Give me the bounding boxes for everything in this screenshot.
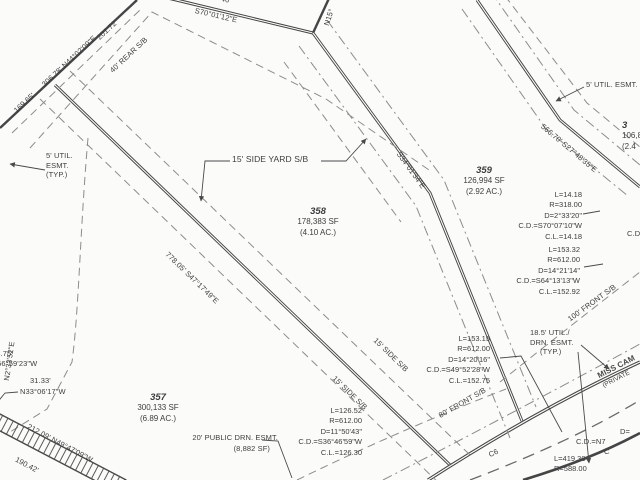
util-easement-right-label: 5' UTIL. ESMT. xyxy=(586,80,638,89)
lot-area-ac: (6.89 AC.) xyxy=(122,414,194,425)
lot-area-sf: 178,383 SF xyxy=(283,217,353,228)
lot-number: 357 xyxy=(122,392,194,403)
curve-data-c4: L=126.52 R=612.00 D=11°50'43" C.D.=S36°4… xyxy=(294,406,362,458)
curve-line: L=153.15 xyxy=(414,334,490,344)
curve-line: C.L.=14.18 xyxy=(518,232,582,242)
curve-data-c3: L=153.15 R=612.00 D=14°20'16" C.D.=S49°5… xyxy=(414,334,490,386)
lot-area-sf: 106,8 xyxy=(622,131,640,142)
west-dist2-label: 31.33' xyxy=(30,376,51,385)
util-easement-left-label: 5' UTIL. ESMT. (TYP.) xyxy=(46,151,73,180)
curve-data-cd-partial: C.D xyxy=(627,229,640,238)
curve-line: C.D.=S64°13'13"W xyxy=(514,276,580,286)
curve-line: C.L.=152.75 xyxy=(414,376,490,386)
west-brg2-label: N33°06'17"W xyxy=(20,387,66,396)
curve-line: L=126.52 xyxy=(294,406,362,416)
public-drn-easement-area: (8,882 SF) xyxy=(160,444,270,453)
util-drn-easement-label: 18.5' UTIL./ DRN. ESMT. (TYP.) xyxy=(530,328,574,357)
lot-number: 3 xyxy=(622,120,640,131)
curve-line: R=612.00 xyxy=(294,416,362,426)
plat-survey-drawing: 169.65' 306.78' N44°02'09"E 201.72' 40' … xyxy=(0,0,640,480)
curve-data-c5: L=419.30 R=588.00 xyxy=(554,454,604,475)
curve-line: D=14°21'14" xyxy=(514,266,580,276)
curve-line: D=14°20'16" xyxy=(414,355,490,365)
lot-area-sf: 126,994 SF xyxy=(448,176,520,187)
lot-357-block: 357 300,133 SF (6.89 AC.) xyxy=(122,392,194,424)
curve-line: L=14.18 xyxy=(518,190,582,200)
public-drn-easement-label: 20' PUBLIC DRN. ESMT. xyxy=(160,433,278,442)
lot-area-ac: (2.4 xyxy=(622,142,640,153)
curve-data-c1: L=14.18 R=318.00 D=2°33'20" C.D.=S70°07'… xyxy=(518,190,582,242)
curve-line: C.D.=S70°07'10"W xyxy=(518,221,582,231)
easement-text-line: (TYP.) xyxy=(530,347,574,357)
west-dist1-label: 43.75' xyxy=(0,349,13,358)
curve-line: R=318.00 xyxy=(518,200,582,210)
lot-area-sf: 300,133 SF xyxy=(122,403,194,414)
lot-area-ac: (2.92 AC.) xyxy=(448,187,520,198)
easement-text-line: DRN. ESMT. xyxy=(530,338,574,348)
curve-data-c2: L=153.32 R=612.00 D=14°21'14" C.D.=S64°1… xyxy=(514,245,580,297)
lot-359-block: 359 126,994 SF (2.92 AC.) xyxy=(448,165,520,197)
curve-line: C.L.=126.30 xyxy=(294,448,362,458)
curve-line: R=588.00 xyxy=(554,464,604,474)
curve-line: C.D.=S49°52'28"W xyxy=(414,365,490,375)
lot-number: 359 xyxy=(448,165,520,176)
west-brg1-label: S56°59'23"W xyxy=(0,359,37,368)
easement-text-line: ESMT. xyxy=(46,161,73,171)
curve-line: D=11°50'43" xyxy=(294,427,362,437)
curve-data-c6-partial-cd: C.D.=N7 xyxy=(576,437,606,446)
easement-text-line: 18.5' UTIL./ xyxy=(530,328,574,338)
curve-line: D=2°33'20" xyxy=(518,211,582,221)
curve-line: L=153.32 xyxy=(514,245,580,255)
curve-data-c6-partial-c: C xyxy=(604,447,610,456)
curve-data-c6-partial-d: D= xyxy=(620,427,630,436)
lot-right-partial-block: 3 106,8 (2.4 xyxy=(622,120,640,152)
curve-line: R=612.00 xyxy=(514,255,580,265)
lot-358-block: 358 178,383 SF (4.10 AC.) xyxy=(283,206,353,238)
lot-area-ac: (4.10 AC.) xyxy=(283,228,353,239)
curve-line: C.D.=S36°46'59"W xyxy=(294,437,362,447)
easement-text-line: 5' UTIL. xyxy=(46,151,73,161)
curve-line: L=419.30 xyxy=(554,454,604,464)
side-yard-setback-label: 15' SIDE YARD S/B xyxy=(232,155,308,164)
curve-line: C.L.=152.92 xyxy=(514,287,580,297)
lot-number: 358 xyxy=(283,206,353,217)
curve-line: R=612.00 xyxy=(414,344,490,354)
easement-text-line: (TYP.) xyxy=(46,170,73,180)
